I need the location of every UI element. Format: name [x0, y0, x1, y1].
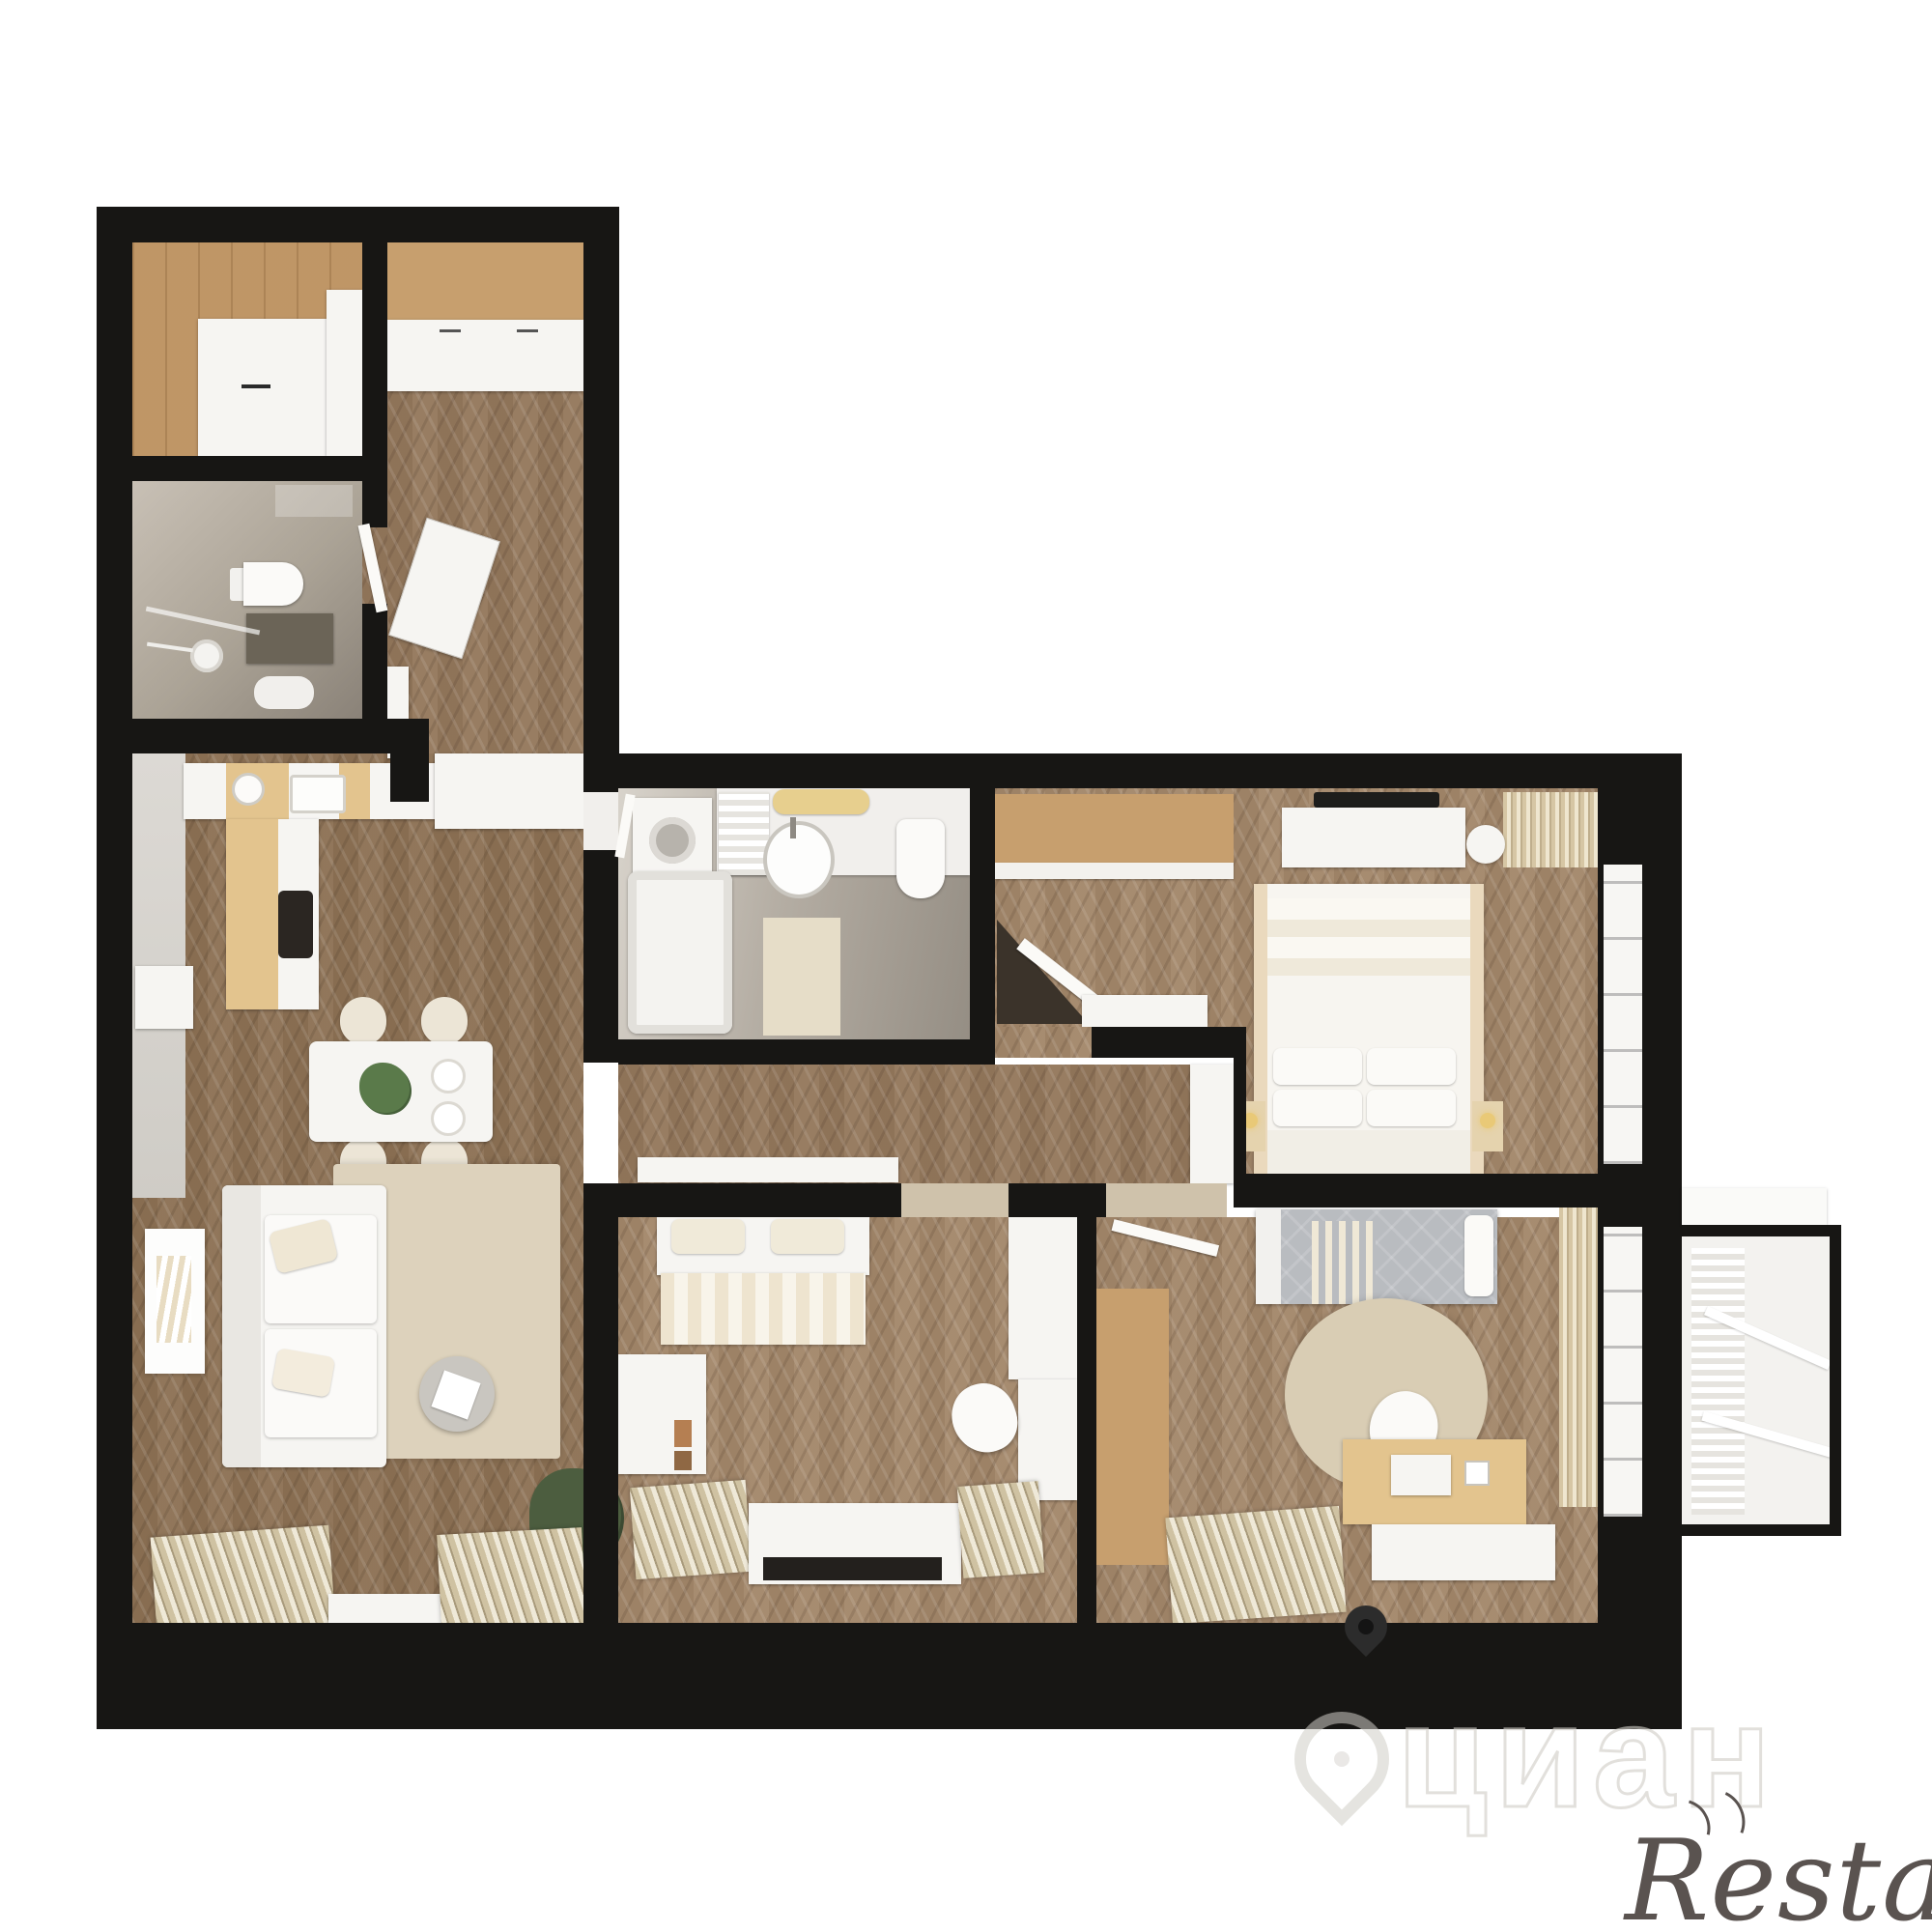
bedroom2-door-threshold [1106, 1183, 1227, 1217]
balcony-frame-right [1830, 1225, 1841, 1536]
bedroom2-bed [1256, 1209, 1497, 1304]
kitchen-sideboard [135, 966, 193, 1029]
outer-wall-left [97, 207, 132, 1729]
bedroom1-console-desk [1082, 995, 1207, 1027]
corridor-bottom-wall-a [618, 1183, 901, 1217]
bath2-ladder-shelf [719, 792, 769, 875]
bath2-right-wall [970, 788, 995, 1065]
kitchen-prep-sink [232, 773, 265, 806]
corridor-east-wall [1234, 1058, 1246, 1188]
bedroom1-curtain [1503, 792, 1598, 867]
bath2-faucet [790, 817, 796, 838]
dining-plate [431, 1101, 466, 1136]
bedroom2-striped-throw [1312, 1221, 1376, 1304]
dining-table-plant [359, 1063, 410, 1113]
bedroom2-low-cabinet [1372, 1524, 1555, 1580]
bedroom3-wardrobe [1009, 1217, 1077, 1379]
bedroom3-radiator-left [630, 1480, 752, 1579]
bath2-door-threshold [583, 792, 618, 850]
kitchen-tall-cabinets [435, 753, 583, 829]
corridor-bottom-wall-b [1009, 1183, 1106, 1217]
dining-chair [421, 997, 468, 1045]
bedroom1-pillow [1273, 1048, 1362, 1085]
bedroom1-ac-vent [1314, 792, 1439, 808]
bedroom1-pillow [1367, 1090, 1456, 1126]
outer-wall-top-left-block [97, 207, 619, 242]
bath2-bottom-wall [618, 1039, 995, 1065]
bedroom2-radiator [1165, 1506, 1346, 1624]
bedroom1-ac-unit [1282, 808, 1465, 867]
living-bed3-wall [583, 1183, 618, 1623]
balcony-window-slats [1691, 1248, 1745, 1515]
agency-watermark-text: Restate [1625, 1826, 1932, 1932]
bedroom3-sofa-cushion [671, 1219, 745, 1254]
hall-wardrobe [387, 320, 583, 391]
bath1-bottom-wall [132, 719, 390, 753]
bedroom1-curtain-tie [1466, 825, 1505, 864]
bath1-vanity [246, 613, 333, 664]
hall-wardrobe-handle [440, 329, 461, 332]
portal-pin-hole [1355, 1616, 1378, 1638]
balcony-frame-bottom [1682, 1524, 1841, 1536]
left-block-right-wall [583, 207, 619, 788]
bedroom3-sofa-mattress [661, 1273, 866, 1345]
bedroom1-wardrobe-ledge [995, 863, 1234, 879]
bedroom1-bottom-wall [1234, 1174, 1598, 1207]
bedroom1-pillow [1273, 1090, 1362, 1126]
balcony-parapet [1682, 1188, 1827, 1225]
bedroom2-desk-item [1464, 1461, 1490, 1486]
bath1-right-wall-upper [362, 477, 387, 527]
washing-machine-door [649, 817, 696, 864]
bedroom2-wardrobe [1096, 1289, 1169, 1565]
bedroom1-blanket-fold [1267, 898, 1470, 976]
kitchen-cooktop [278, 891, 313, 958]
bedroom3-dresser-drawer [674, 1451, 692, 1470]
dining-plate [431, 1059, 466, 1094]
bedroom3-door-threshold [901, 1183, 1009, 1217]
bath2-towel-tray [773, 789, 869, 814]
bedroom2-desk-printer [1391, 1455, 1451, 1495]
bedroom2-pillow [1464, 1215, 1493, 1296]
closet-hall-divider [362, 242, 387, 477]
bedroom3-dresser [618, 1354, 706, 1474]
bath2-bathmat [763, 918, 840, 1036]
outer-wall-main-top [583, 753, 1682, 788]
closet-side-panel [327, 290, 362, 456]
hall-wardrobe-handle [517, 329, 538, 332]
closet-cabinet-handle [241, 384, 270, 388]
bedroom1-wardrobe [995, 794, 1234, 863]
bedroom1-nook-door-threshold [995, 1027, 1092, 1058]
corridor-cabinet [1190, 1065, 1234, 1183]
kitchen-counter-left-wood [226, 819, 278, 1009]
bedroom2-window [1604, 1227, 1642, 1517]
bedroom3-dresser-drawer [674, 1420, 692, 1447]
bath1-ceiling-vent [275, 485, 353, 517]
bath2-sink [763, 821, 835, 898]
bath2-bathtub [628, 871, 732, 1034]
wall-art-motif [156, 1256, 191, 1343]
bedroom3-sofa-cushion [771, 1219, 844, 1254]
sofa-backrest [222, 1185, 261, 1467]
bedroom3-radiator-right [957, 1481, 1044, 1578]
kitchen-main-sink [290, 775, 346, 813]
bedroom1-nook-bottom-wall [1092, 1027, 1246, 1058]
corridor-console [638, 1157, 898, 1182]
bath2-toilet [896, 819, 945, 898]
hall-kitchen-stub-wall [390, 719, 429, 802]
bath1-toilet [243, 562, 303, 606]
bedroom1-headboard [1267, 1130, 1470, 1174]
portal-pin-ghost-hole [1331, 1748, 1353, 1771]
balcony-frame-top [1682, 1225, 1841, 1236]
closet-bath-divider [132, 456, 387, 481]
bath1-round-sink [190, 639, 223, 672]
dining-chair [340, 997, 386, 1045]
bath1-right-wall-lower [362, 604, 387, 719]
hall-upper-cabinet [387, 242, 583, 320]
bath1-shower-tray [254, 676, 314, 709]
bedroom1-pillow [1367, 1048, 1456, 1085]
bedroom3-bedroom2-divider [1077, 1217, 1096, 1623]
floorplan-render: циан Restate [0, 0, 1932, 1932]
bedroom1-window [1604, 865, 1642, 1164]
bedroom3-window-glazing [763, 1557, 942, 1580]
bedroom2-bed-mattress-edge [1256, 1209, 1281, 1304]
bedroom1-lamp [1480, 1113, 1495, 1128]
bedroom2-curtain [1559, 1174, 1598, 1507]
